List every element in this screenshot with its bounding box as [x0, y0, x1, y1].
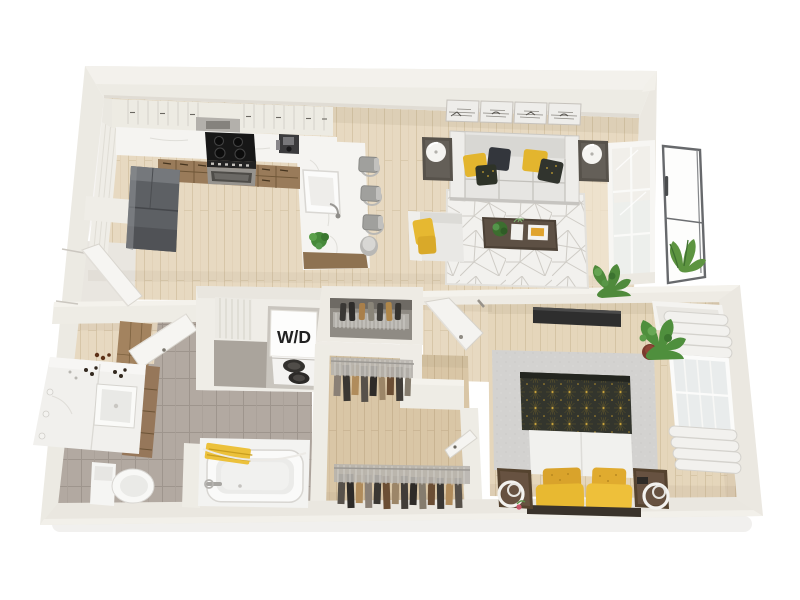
svg-text:W/D: W/D: [277, 327, 311, 347]
